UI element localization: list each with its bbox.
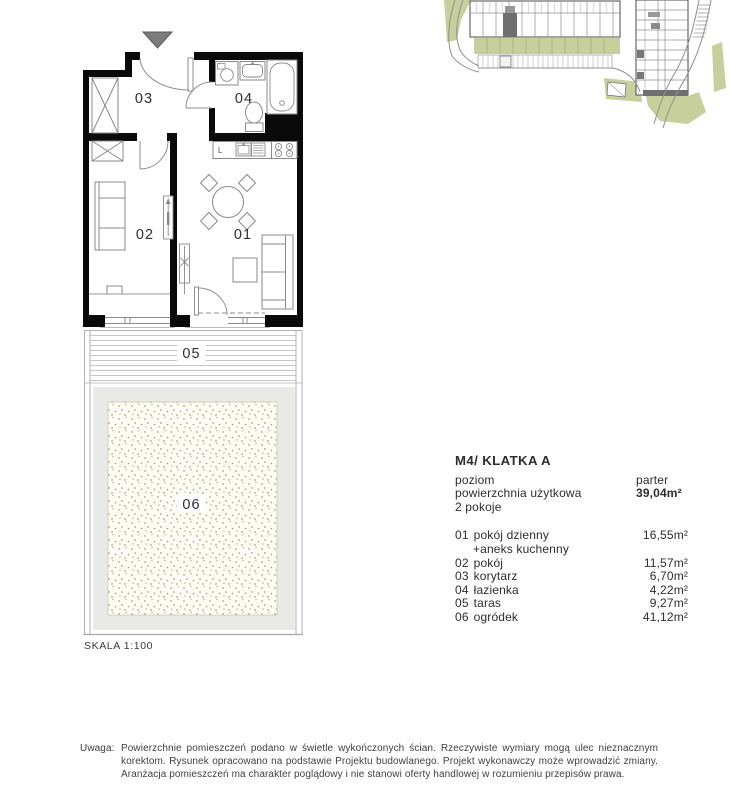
room-list-row: 06ogródek 41,12m² [455,611,688,625]
scale-label: SKALA 1:100 [84,640,153,652]
highlighted-unit [503,13,517,37]
kitchen-counter: L [213,142,297,159]
entrance-arrow-icon [143,32,172,48]
kitchen-letter: L [218,146,223,155]
room-number: 02 [455,556,469,570]
radiator-icon [180,244,190,294]
radiator-icon [164,196,174,239]
room-area: 6,70m² [624,570,688,584]
site-plan-thumbnail [444,0,726,128]
stove-icon [272,142,298,159]
window-sills [84,328,302,331]
disclaimer: Uwaga: Powierzchnie pomieszczeń podano w… [80,742,658,781]
highlight-unit-upper [505,6,515,13]
level-label: poziom [455,474,636,488]
room-area: 9,27m² [624,597,688,611]
room-name: korytarz [474,569,518,583]
site-building-top-wing [470,1,620,37]
room-list-row: 05taras 9,27m² [455,597,688,611]
rooms-count-row: 2 pokoje [455,501,688,515]
site-stairs-hatch [693,5,711,37]
room-number: 06 [455,610,469,624]
usable-area-row: powierzchnia użytkowa 39,04m² [455,487,688,501]
room-label-02: 02 [136,227,154,243]
rooms-count: 2 pokoje [455,501,636,515]
room-name: pokój dzienny [474,528,549,542]
corridor-wardrobe-icon [92,78,118,133]
room-name: taras [474,596,501,610]
floor-plan: L 03 04 02 01 [83,32,303,331]
level-row: poziom parter [455,474,688,488]
drawing-sheet: L 03 04 02 01 [0,0,730,800]
garden-label: 06 [182,497,200,513]
window-room01 [228,318,265,324]
usable-area-value: 39,04m² [636,487,688,501]
room-list-row: 04łazienka 4,22m² [455,584,688,598]
room-area: 11,57m² [624,557,688,571]
room-area: 4,22m² [624,584,688,598]
room-label-04: 04 [235,91,253,107]
washing-machine-icon [216,62,239,86]
room-number: 01 [455,528,469,542]
room-area: 41,12m² [624,611,688,625]
disclaimer-label: Uwaga: [80,742,121,781]
room-name: pokój [474,556,503,570]
sofa-icon [262,235,293,309]
room-area: 16,55m² [624,529,688,543]
usable-area-label: powierzchnia użytkowa [455,487,636,501]
room-name-line2: +aneks kuchenny [473,543,624,557]
dining-table-icon [201,175,256,230]
room-number: 05 [455,596,469,610]
entrance-door-arc [140,58,193,91]
room-number: 03 [455,569,469,583]
unit-info-panel: M4/ KLATKA A poziom parter powierzchnia … [455,454,688,625]
disclaimer-line: Powierzchnie pomieszczeń podano w świetl… [121,742,658,755]
room-label-03: 03 [135,91,153,107]
site-parking [478,55,612,68]
room-list-row: 01pokój dzienny +aneks kuchenny 16,55m² [455,529,688,556]
room-label-01: 01 [234,227,252,243]
nightstand-icon [107,286,122,294]
room-number: 04 [455,583,469,597]
site-building-right-wing [636,0,688,96]
bed-icon [95,182,125,250]
room-list-row: 02pokój 11,57m² [455,557,688,571]
kitchen-sink-icon [236,143,251,156]
level-value: parter [636,474,688,488]
coffee-table-icon [233,258,257,282]
disclaimer-line: korektom. Rysunek opracowano na podstawi… [121,755,658,768]
room02-door-arc [140,141,168,169]
bathroom-sink-icon [240,62,265,81]
terrace-door-arc [195,287,228,315]
garden-area: 06 [83,387,303,635]
site-shed [607,82,626,97]
disclaimer-line: Aranżacja pomieszczeń ma charakter poglą… [121,768,658,781]
room-name: łazienka [474,583,519,597]
room02-wardrobe-icon [92,141,123,161]
bathtub-icon [267,60,297,114]
terrace-label: 05 [182,346,200,362]
room-name: ogródek [474,610,518,624]
room-list-row: 03korytarz 6,70m² [455,570,688,584]
unit-title: M4/ KLATKA A [455,454,688,468]
drainer-icon [252,143,266,156]
window-room02 [105,318,170,324]
